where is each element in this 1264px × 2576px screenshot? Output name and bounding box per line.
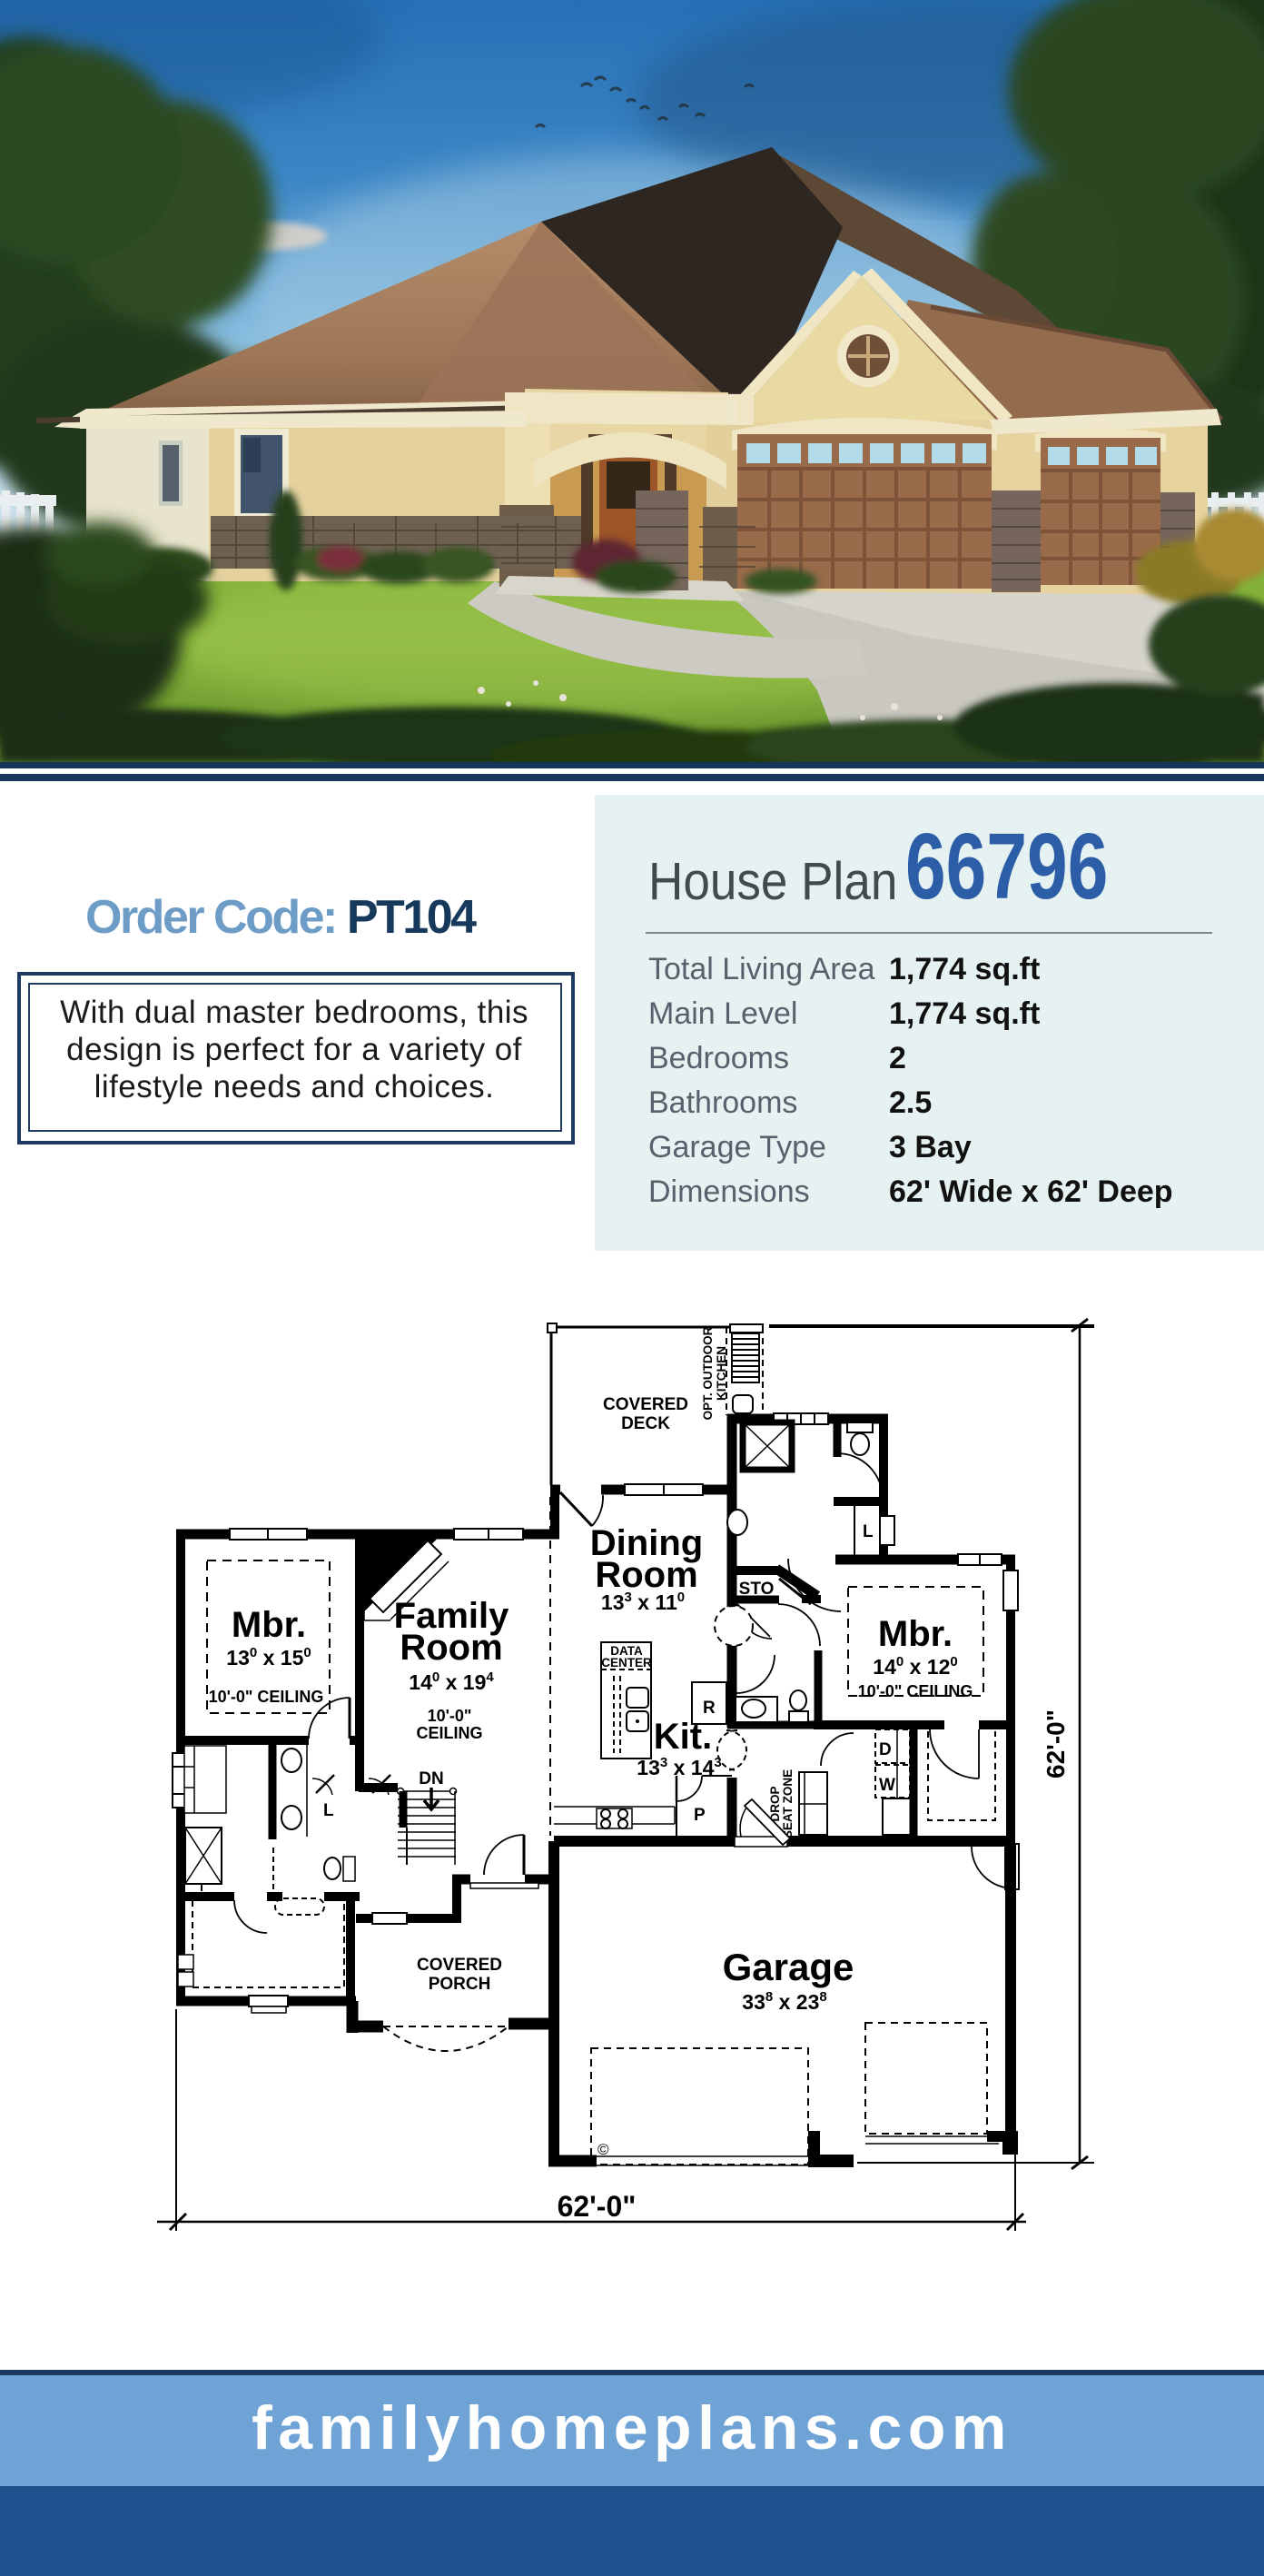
svg-text:PORCH: PORCH — [429, 1975, 491, 1994]
svg-text:SEAT ZONE: SEAT ZONE — [781, 1769, 795, 1838]
svg-text:133 x 110: 133 x 110 — [601, 1590, 685, 1614]
svg-text:CEILING: CEILING — [416, 1724, 482, 1742]
svg-text:DECK: DECK — [621, 1414, 670, 1433]
svg-text:R: R — [703, 1699, 716, 1718]
svg-text:10'-0" CEILING: 10'-0" CEILING — [209, 1688, 324, 1706]
svg-text:130 x 150: 130 x 150 — [226, 1645, 311, 1669]
svg-text:10'-0": 10'-0" — [428, 1707, 472, 1725]
svg-text:COVERED: COVERED — [417, 1956, 502, 1975]
svg-text:CENTER: CENTER — [601, 1656, 652, 1669]
svg-text:338 x 238: 338 x 238 — [742, 1989, 826, 2014]
svg-text:Mbr.: Mbr. — [232, 1605, 306, 1645]
svg-text:KITCHEN: KITCHEN — [715, 1346, 728, 1401]
svg-text:140 x 120: 140 x 120 — [873, 1654, 957, 1679]
svg-text:DROP: DROP — [768, 1786, 782, 1821]
svg-text:62'-0": 62'-0" — [558, 2190, 637, 2223]
svg-text:DN: DN — [419, 1769, 443, 1788]
svg-text:140 x 194: 140 x 194 — [409, 1669, 494, 1694]
svg-text:Kit.: Kit. — [654, 1717, 712, 1757]
svg-text:Room: Room — [400, 1628, 502, 1668]
svg-text:L: L — [863, 1522, 874, 1541]
svg-text:STO: STO — [739, 1580, 775, 1599]
svg-text:L: L — [323, 1801, 334, 1820]
svg-text:62'-0": 62'-0" — [1042, 1709, 1070, 1778]
svg-text:Garage: Garage — [723, 1946, 854, 1988]
svg-text:OPT. OUTDOOR: OPT. OUTDOOR — [701, 1326, 715, 1420]
svg-text:P: P — [694, 1806, 706, 1825]
svg-text:COVERED: COVERED — [603, 1395, 688, 1414]
svg-text:D: D — [879, 1740, 892, 1759]
svg-text:W: W — [879, 1776, 895, 1795]
svg-text:10'-0" CEILING: 10'-0" CEILING — [858, 1682, 973, 1700]
svg-text:©: © — [597, 2141, 609, 2158]
svg-text:Mbr.: Mbr. — [878, 1614, 953, 1654]
